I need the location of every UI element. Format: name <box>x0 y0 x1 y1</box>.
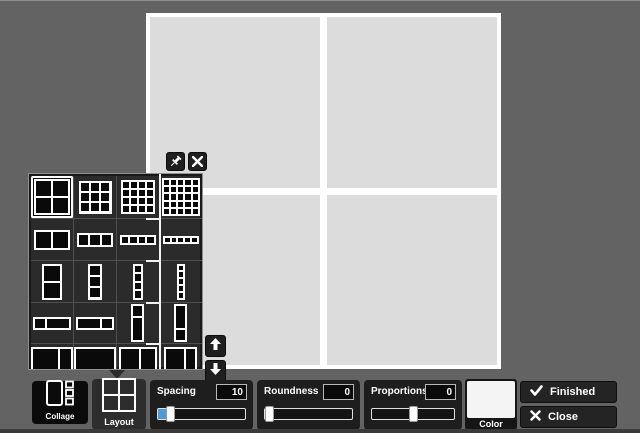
layout-thumbnail-columns-2 <box>34 230 70 250</box>
popup-row-tick <box>146 343 160 345</box>
layout-thumbnail-grid-4x4 <box>121 180 155 214</box>
layout-thumbnail-big-split-right <box>164 347 197 371</box>
collage-editor: { "colors": { "background": "#636363", "… <box>0 0 640 433</box>
layout-thumbnail-tall-small-bottom <box>174 304 187 342</box>
proportions-label: Proportions <box>371 386 428 397</box>
layout-grid-icon <box>101 378 137 417</box>
pin-popup-button[interactable] <box>166 152 185 171</box>
layout-thumbnail-grid-5x5 <box>162 178 200 216</box>
window-top-edge <box>0 0 640 1</box>
layout-option-wide-small-left[interactable] <box>31 303 74 344</box>
arrow-up-icon <box>209 337 222 356</box>
color-button[interactable]: Color <box>465 379 517 430</box>
layout-thumbnail-rows-5 <box>177 264 185 300</box>
roundness-label: Roundness <box>264 386 318 397</box>
layout-option-grid-2x2[interactable] <box>31 176 74 219</box>
layout-thumbnail-tall-small-top <box>131 304 144 342</box>
color-swatch <box>467 381 515 418</box>
color-button-label: Color <box>465 419 517 429</box>
layout-thumbnail-columns-3 <box>77 233 113 247</box>
scroll-down-button[interactable] <box>205 360 226 382</box>
layout-option-grid-5x5[interactable] <box>160 176 203 219</box>
layout-thumbnail-big-split-left <box>31 347 73 371</box>
layout-thumbnail-big-split-center <box>119 347 157 371</box>
layout-thumbnail-columns-5 <box>163 236 199 244</box>
roundness-slider-handle[interactable] <box>265 406 274 422</box>
proportions-slider[interactable] <box>371 408 455 420</box>
roundness-panel: Roundness 0 <box>257 380 360 430</box>
layout-option-wide-small-right[interactable] <box>74 303 117 344</box>
layout-option-columns-2[interactable] <box>31 219 74 261</box>
proportions-value[interactable]: 0 <box>425 384 456 400</box>
layout-option-big-split-center[interactable] <box>117 344 160 370</box>
x-icon <box>530 410 541 424</box>
proportions-slider-handle[interactable] <box>409 406 418 422</box>
layout-option-rows-3[interactable] <box>74 261 117 303</box>
checkmark-icon <box>530 385 543 399</box>
spacing-panel: Spacing 10 <box>150 380 253 430</box>
layout-thumbnail-rows-3 <box>88 264 102 300</box>
window-bottom-edge <box>0 429 640 433</box>
layout-option-rows-5[interactable] <box>160 261 203 303</box>
layout-option-tall-small-top[interactable] <box>117 303 160 344</box>
layout-option-tall-small-bottom[interactable] <box>160 303 203 344</box>
arrow-down-icon <box>209 362 222 381</box>
layout-button-label: Layout <box>104 417 134 428</box>
layout-mode-button[interactable]: Layout <box>92 379 146 430</box>
close-icon <box>192 156 203 167</box>
layout-thumbnail-wide-small-right <box>76 317 114 330</box>
layout-thumbnail-rows-4 <box>133 264 143 300</box>
layout-thumbnail-grid-3x3 <box>79 181 112 214</box>
layout-option-rows-2[interactable] <box>31 261 74 303</box>
layout-option-columns-5[interactable] <box>160 219 203 261</box>
close-popup-button[interactable] <box>188 152 207 171</box>
layout-options-grid <box>31 176 202 369</box>
popup-row-tick <box>146 218 160 220</box>
layout-thumbnail-grid-2x2 <box>34 179 70 215</box>
collage-mode-button[interactable]: Collage <box>32 381 88 424</box>
spacing-value[interactable]: 10 <box>216 384 247 400</box>
spacing-slider[interactable] <box>157 408 246 420</box>
collage-cell-2[interactable] <box>327 17 497 188</box>
collage-icon <box>45 380 75 411</box>
scroll-up-button[interactable] <box>205 335 226 357</box>
spacing-label: Spacing <box>157 386 196 397</box>
layout-option-grid-3x3[interactable] <box>74 176 117 219</box>
layout-thumbnail-rows-2 <box>42 264 62 300</box>
layout-thumbnail-columns-4 <box>120 235 156 245</box>
proportions-panel: Proportions 0 <box>364 380 462 430</box>
finished-button-label: Finished <box>550 386 595 398</box>
layout-thumbnail-big-single <box>74 347 116 371</box>
layout-picker-popup <box>28 173 203 370</box>
close-button[interactable]: Close <box>520 406 617 428</box>
layout-option-grid-4x4[interactable] <box>117 176 160 219</box>
layout-option-rows-4[interactable] <box>117 261 160 303</box>
layout-option-columns-3[interactable] <box>74 219 117 261</box>
layout-option-big-split-right[interactable] <box>160 344 203 370</box>
pushpin-icon <box>169 155 182 168</box>
layout-option-columns-4[interactable] <box>117 219 160 261</box>
roundness-slider[interactable] <box>264 408 353 420</box>
collage-button-label: Collage <box>46 411 75 422</box>
layout-option-big-single[interactable] <box>74 344 117 370</box>
popup-row-tick <box>146 260 160 262</box>
collage-cell-4[interactable] <box>327 195 497 366</box>
layout-thumbnail-wide-small-left <box>33 317 71 330</box>
popup-column-divider <box>159 174 161 370</box>
close-button-label: Close <box>548 411 578 423</box>
layout-option-big-split-left[interactable] <box>31 344 74 370</box>
finished-button[interactable]: Finished <box>520 381 617 403</box>
roundness-value[interactable]: 0 <box>323 384 354 400</box>
popup-row-tick <box>146 302 160 304</box>
spacing-slider-handle[interactable] <box>166 406 175 422</box>
